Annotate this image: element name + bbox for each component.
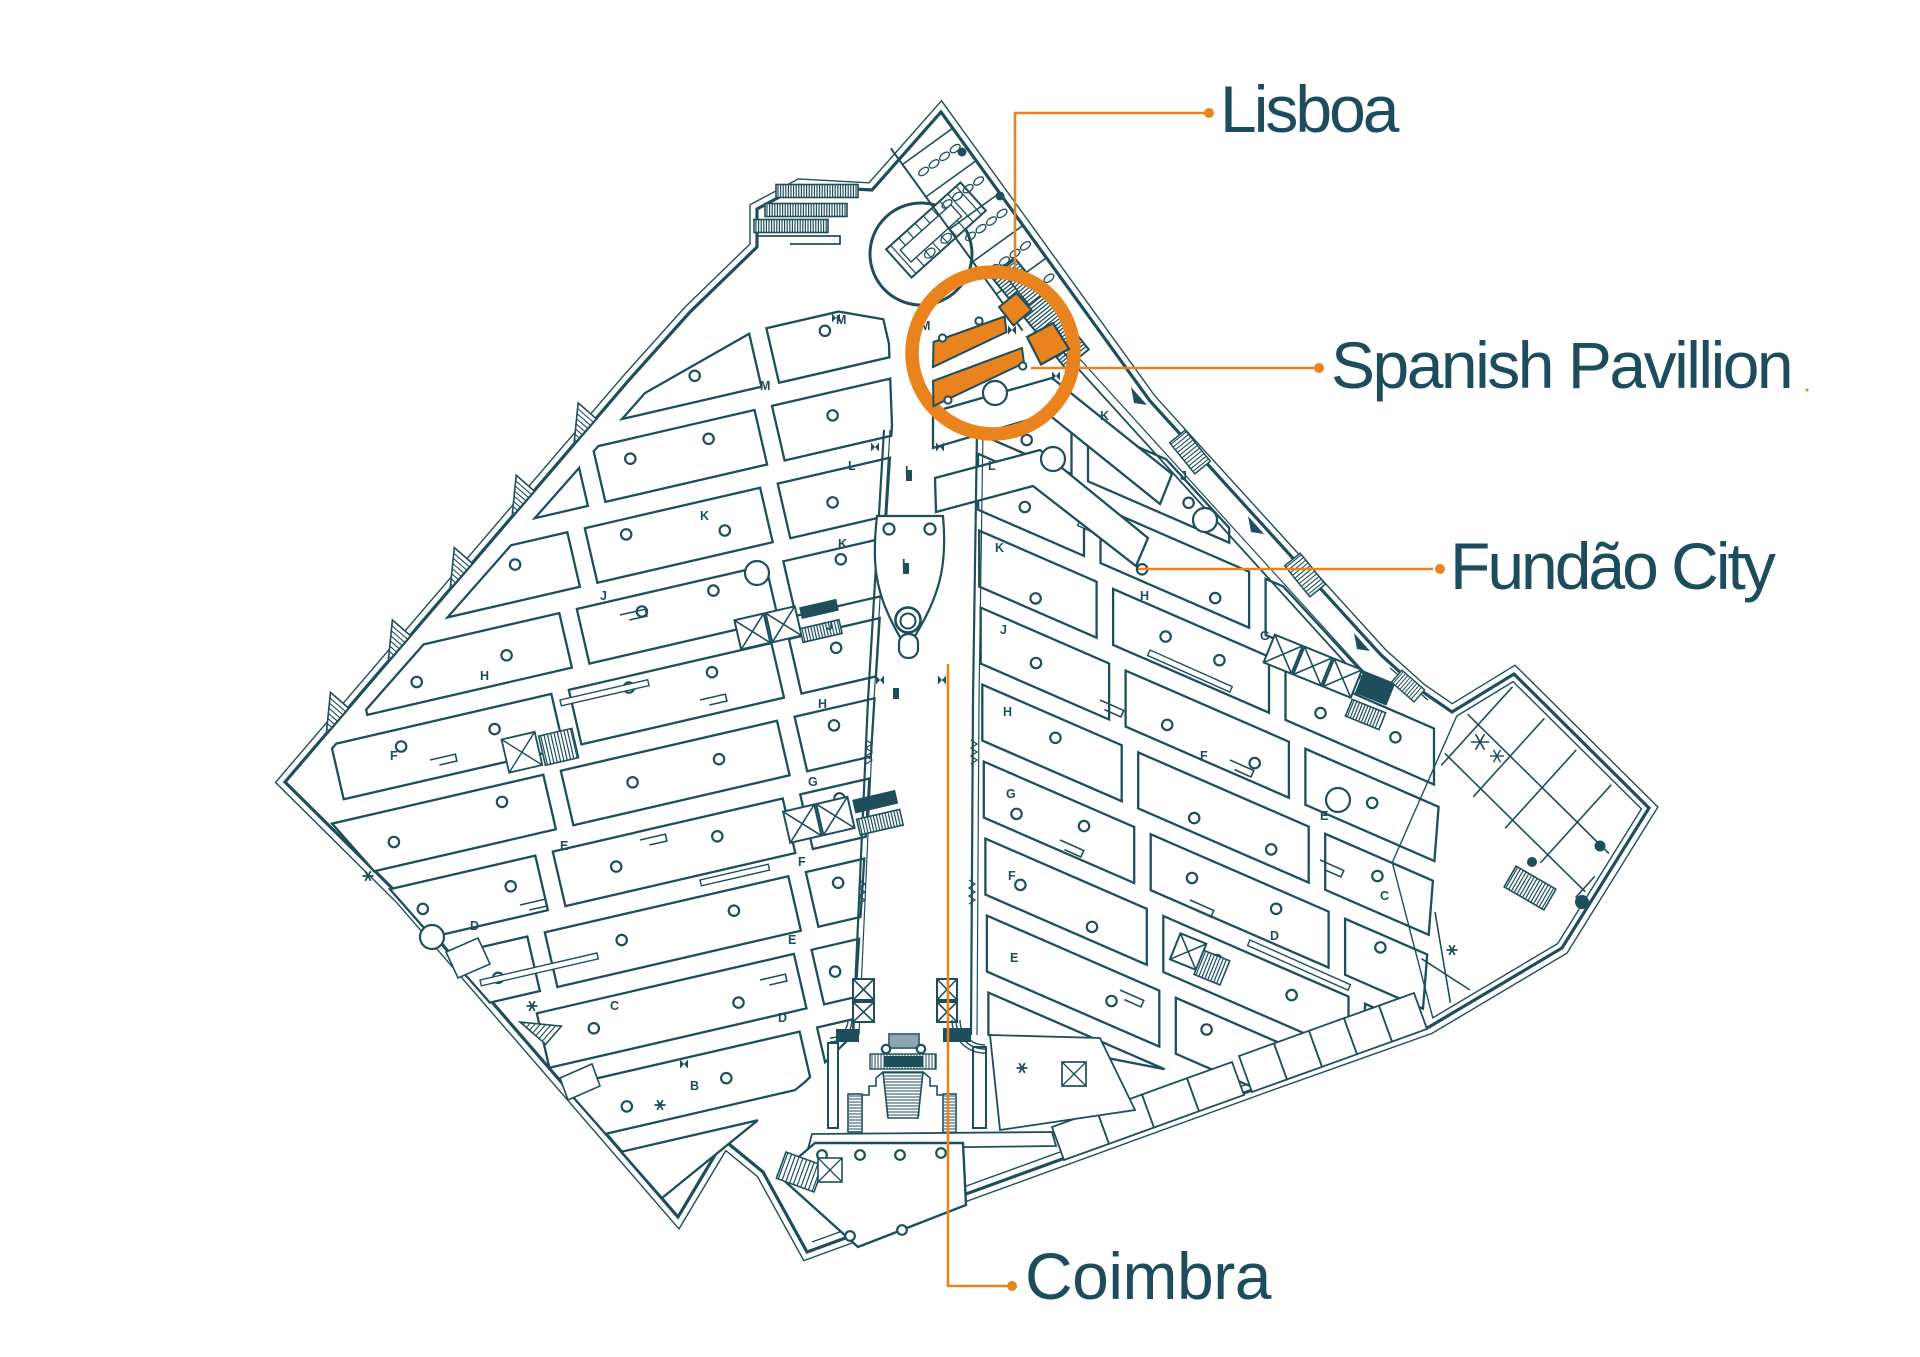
svg-text:J: J <box>1180 469 1187 483</box>
svg-text:H: H <box>480 669 489 683</box>
svg-text:M: M <box>760 379 770 393</box>
svg-text:H: H <box>818 697 827 711</box>
svg-text:K: K <box>838 537 847 551</box>
svg-text:H: H <box>1003 705 1012 719</box>
svg-text:E: E <box>1320 809 1328 823</box>
svg-text:J: J <box>826 619 833 633</box>
svg-text:D: D <box>470 919 479 933</box>
svg-text:D: D <box>1270 929 1279 943</box>
svg-text:C: C <box>610 999 619 1013</box>
svg-text:L: L <box>988 459 996 473</box>
svg-text:J: J <box>600 589 607 603</box>
svg-text:E: E <box>1010 951 1018 965</box>
svg-text:F: F <box>390 749 398 763</box>
svg-text:D: D <box>778 1011 787 1025</box>
svg-text:E: E <box>560 839 568 853</box>
svg-text:J: J <box>1000 623 1007 637</box>
svg-text:K: K <box>700 509 709 523</box>
svg-text:H: H <box>1140 589 1149 603</box>
svg-text:G: G <box>1006 787 1016 801</box>
svg-text:B: B <box>690 1079 699 1093</box>
svg-text:G: G <box>808 775 818 789</box>
svg-text:K: K <box>1100 409 1109 423</box>
svg-text:F: F <box>1200 749 1208 763</box>
svg-text:E: E <box>788 933 796 947</box>
svg-text:C: C <box>1380 889 1389 903</box>
svg-text:L: L <box>848 459 856 473</box>
svg-text:G: G <box>1260 629 1270 643</box>
svg-text:I: I <box>905 464 908 478</box>
svg-text:F: F <box>1008 869 1016 883</box>
svg-text:I: I <box>902 557 905 571</box>
svg-text:K: K <box>995 541 1004 555</box>
svg-text:M: M <box>836 313 846 327</box>
svg-text:F: F <box>798 855 806 869</box>
